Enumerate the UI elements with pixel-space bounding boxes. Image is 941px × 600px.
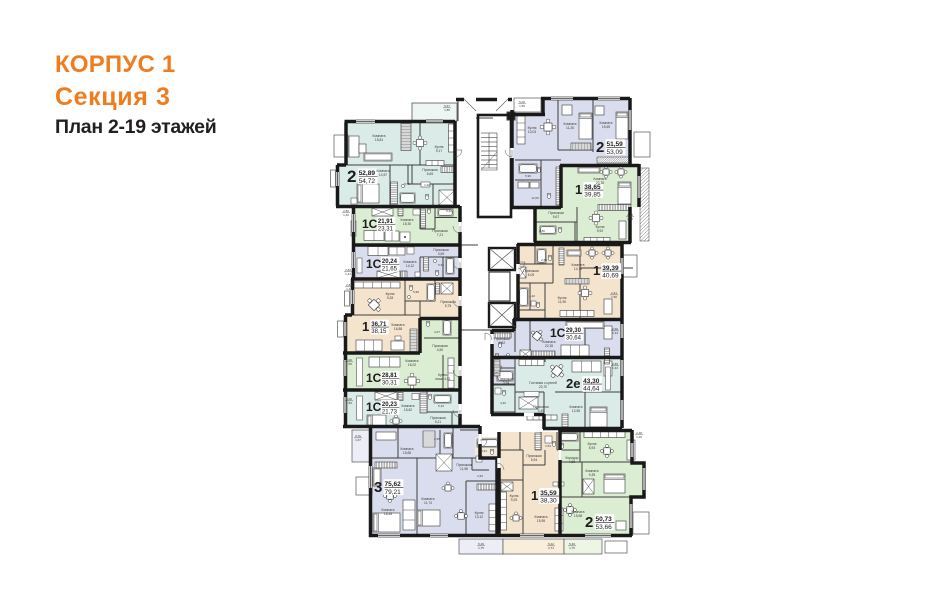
svg-text:2,50: 2,50 <box>541 258 547 262</box>
svg-text:1: 1 <box>593 263 600 278</box>
svg-text:1,51: 1,51 <box>545 444 551 448</box>
svg-text:1С: 1С <box>550 326 566 340</box>
svg-text:1,32: 1,32 <box>424 183 430 187</box>
svg-text:79,21: 79,21 <box>385 489 402 496</box>
svg-text:11,74: 11,74 <box>424 501 432 505</box>
svg-text:12,65: 12,65 <box>531 196 539 200</box>
svg-text:5,21: 5,21 <box>435 420 442 424</box>
svg-text:5,96: 5,96 <box>525 174 531 178</box>
svg-text:2: 2 <box>585 514 593 531</box>
svg-text:15,65: 15,65 <box>403 451 411 455</box>
svg-text:5,55: 5,55 <box>438 263 444 267</box>
svg-text:14,57: 14,57 <box>379 173 387 177</box>
svg-text:44,64: 44,64 <box>583 386 600 393</box>
svg-text:4,32: 4,32 <box>529 294 535 298</box>
svg-text:35,59: 35,59 <box>540 490 557 497</box>
svg-text:2: 2 <box>596 139 604 156</box>
svg-text:16,88: 16,88 <box>394 327 402 331</box>
svg-text:1,40: 1,40 <box>343 213 349 217</box>
svg-text:4,33: 4,33 <box>503 354 509 358</box>
svg-text:1С: 1С <box>366 257 382 271</box>
svg-text:53,09: 53,09 <box>607 149 624 156</box>
svg-text:4,07: 4,07 <box>434 330 440 334</box>
svg-text:9,28: 9,28 <box>387 296 394 300</box>
svg-text:1,50: 1,50 <box>346 362 352 366</box>
svg-text:23,31: 23,31 <box>378 227 394 233</box>
svg-text:54,72: 54,72 <box>359 178 376 185</box>
svg-text:14,79: 14,79 <box>574 267 582 271</box>
svg-text:5,67: 5,67 <box>553 215 560 219</box>
svg-text:1,34: 1,34 <box>612 331 618 335</box>
svg-text:6,93: 6,93 <box>589 446 596 450</box>
svg-text:1,50: 1,50 <box>519 104 525 108</box>
svg-text:18,48: 18,48 <box>384 512 392 516</box>
svg-text:30,31: 30,31 <box>382 381 398 387</box>
svg-text:15,62: 15,62 <box>404 408 412 412</box>
svg-text:15,69: 15,69 <box>602 125 610 129</box>
svg-text:6,05: 6,05 <box>528 273 535 277</box>
svg-text:14,12: 14,12 <box>406 264 414 268</box>
svg-text:38,30: 38,30 <box>540 498 557 505</box>
svg-text:2,63: 2,63 <box>477 474 483 478</box>
svg-text:9,17: 9,17 <box>436 149 443 153</box>
svg-text:4,65: 4,65 <box>569 460 576 464</box>
svg-text:20,38: 20,38 <box>596 181 604 185</box>
svg-text:43,30: 43,30 <box>583 378 600 385</box>
svg-text:1: 1 <box>362 319 369 334</box>
svg-text:15,68: 15,68 <box>574 514 582 518</box>
svg-text:15,81: 15,81 <box>375 138 383 142</box>
svg-text:21,65: 21,65 <box>382 267 398 273</box>
svg-text:2,95: 2,95 <box>434 437 440 441</box>
svg-text:39,85: 39,85 <box>584 192 601 199</box>
svg-text:5,55: 5,55 <box>404 182 410 186</box>
svg-text:ниша 4,51: ниша 4,51 <box>435 377 451 381</box>
svg-text:2,82: 2,82 <box>499 341 506 345</box>
svg-text:5,49: 5,49 <box>438 404 444 408</box>
svg-text:39,39: 39,39 <box>602 265 619 272</box>
svg-text:1,50: 1,50 <box>346 401 352 405</box>
svg-text:1,41: 1,41 <box>345 272 351 276</box>
svg-text:0,80: 0,80 <box>539 229 545 233</box>
svg-text:15,95: 15,95 <box>537 519 545 523</box>
svg-text:30,64: 30,64 <box>566 336 582 342</box>
svg-text:3,94: 3,94 <box>503 381 510 385</box>
svg-text:40,69: 40,69 <box>602 273 619 280</box>
svg-text:КОРПУС 1: КОРПУС 1 <box>55 51 175 78</box>
svg-text:5,94: 5,94 <box>531 458 538 462</box>
svg-text:11,95: 11,95 <box>558 300 566 304</box>
svg-text:10,03: 10,03 <box>528 130 536 134</box>
svg-text:5,75: 5,75 <box>445 304 452 308</box>
svg-text:2е: 2е <box>566 376 580 391</box>
svg-text:75,62: 75,62 <box>385 481 402 488</box>
svg-text:53,66: 53,66 <box>596 524 613 531</box>
svg-text:21,73: 21,73 <box>382 410 398 416</box>
svg-text:20,70: 20,70 <box>539 385 547 389</box>
svg-text:План 2-19 этажей: План 2-19 этажей <box>55 116 216 138</box>
svg-text:38,15: 38,15 <box>371 329 387 335</box>
svg-text:1С: 1С <box>362 217 378 231</box>
svg-text:9,25: 9,25 <box>511 498 518 502</box>
svg-text:1,85: 1,85 <box>444 108 450 112</box>
svg-text:15,30: 15,30 <box>403 222 411 226</box>
svg-text:5,61: 5,61 <box>481 449 487 453</box>
svg-text:1С: 1С <box>366 371 382 385</box>
svg-text:13,12: 13,12 <box>475 515 483 519</box>
svg-text:4,45: 4,45 <box>538 409 545 413</box>
svg-text:9,35: 9,35 <box>589 473 596 477</box>
svg-text:11,26: 11,26 <box>566 126 574 130</box>
svg-text:1: 1 <box>531 488 538 503</box>
svg-text:1,50: 1,50 <box>611 295 617 299</box>
svg-text:4,32: 4,32 <box>500 401 506 405</box>
svg-text:1,75: 1,75 <box>569 546 575 550</box>
svg-text:2: 2 <box>347 167 356 186</box>
svg-text:1: 1 <box>575 182 582 197</box>
svg-text:1С: 1С <box>366 400 382 414</box>
svg-text:1,75: 1,75 <box>478 546 484 550</box>
svg-text:5,59: 5,59 <box>413 290 419 294</box>
svg-text:11,58: 11,58 <box>460 467 468 471</box>
svg-text:50,73: 50,73 <box>596 516 613 523</box>
svg-text:52,89: 52,89 <box>359 170 376 177</box>
svg-text:1,44: 1,44 <box>346 287 352 291</box>
svg-text:3,59: 3,59 <box>438 252 445 256</box>
svg-text:4,50: 4,50 <box>437 348 444 352</box>
svg-text:12,55: 12,55 <box>572 409 580 413</box>
svg-text:2,71: 2,71 <box>548 546 554 550</box>
svg-text:Секция 3: Секция 3 <box>55 83 170 111</box>
svg-text:1,34: 1,34 <box>612 366 618 370</box>
svg-text:9,92: 9,92 <box>597 229 604 233</box>
svg-text:6,69: 6,69 <box>427 172 434 176</box>
svg-text:3: 3 <box>374 479 382 496</box>
svg-text:5,40: 5,40 <box>446 209 452 213</box>
svg-text:1,67: 1,67 <box>355 438 361 442</box>
svg-text:16,02: 16,02 <box>408 363 416 367</box>
svg-text:7,21: 7,21 <box>437 233 444 237</box>
svg-text:1,20: 1,20 <box>636 435 642 439</box>
svg-text:51,59: 51,59 <box>607 141 624 148</box>
svg-text:1,20: 1,20 <box>627 217 633 221</box>
svg-text:22,35: 22,35 <box>545 344 553 348</box>
